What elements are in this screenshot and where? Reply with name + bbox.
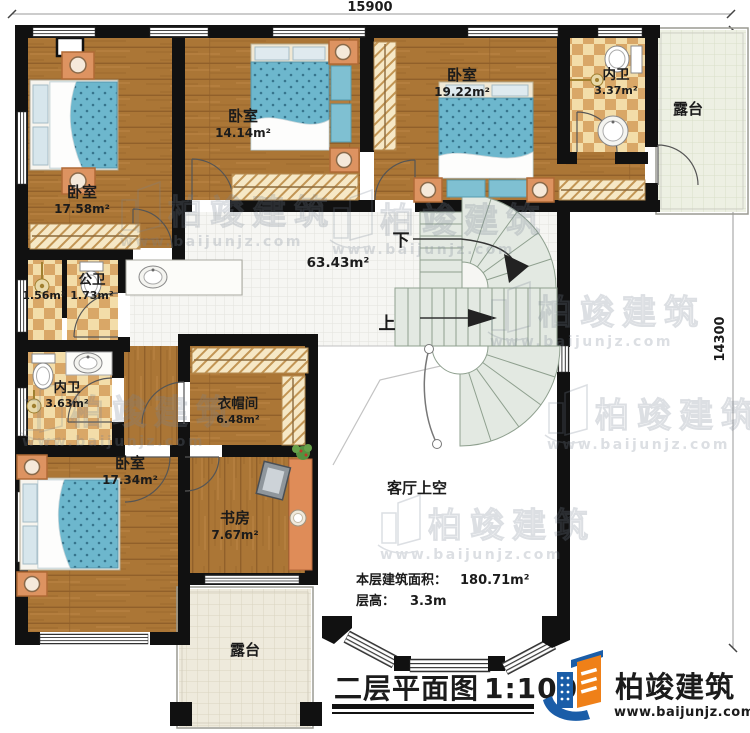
terrace-post xyxy=(300,702,322,726)
svg-text:柏竣建筑: 柏竣建筑 xyxy=(595,396,750,436)
label-public-bath-name: 公卫 xyxy=(79,272,106,288)
label-bedroom-tr-name: 卧室 xyxy=(447,66,477,84)
window xyxy=(468,27,558,37)
svg-text:www.baijunjz.com: www.baijunjz.com xyxy=(490,334,673,350)
nightstand xyxy=(329,40,358,64)
bed-bedroom-tl xyxy=(30,80,118,170)
label-living-void: 客厅上空 xyxy=(386,479,447,497)
wardrobe xyxy=(374,42,396,150)
hall-sink-counter xyxy=(126,260,242,295)
toilet-ensuite-left xyxy=(32,354,55,389)
label-hall-area: 63.43m² xyxy=(307,255,370,271)
label-bedroom-tm-name: 卧室 xyxy=(228,107,258,125)
label-shower-room-area: 1.56m² xyxy=(22,289,66,302)
sink-ensuite-tr xyxy=(598,116,628,146)
stair-rail-post xyxy=(425,345,434,354)
window xyxy=(17,112,27,184)
floor-plan-page: 15900 14300 xyxy=(0,0,750,733)
label-ensuite-left-name: 内卫 xyxy=(54,379,81,396)
label-bedroom-tl-area: 17.58m² xyxy=(54,202,110,216)
label-public-bath-area: 1.73m² xyxy=(70,289,114,302)
brand-url: www.baijunjz.com xyxy=(614,705,750,720)
svg-text:www.baijunjz.com: www.baijunjz.com xyxy=(22,434,205,450)
label-bedroom-bl-area: 17.34m² xyxy=(102,473,158,487)
nightstand xyxy=(330,148,359,172)
wardrobe xyxy=(559,180,645,200)
bed-bedroom-bl xyxy=(20,478,120,570)
terrace-post xyxy=(170,702,192,726)
label-cloakroom-area: 6.48m² xyxy=(216,413,260,426)
label-terrace-bottom: 露台 xyxy=(230,641,260,659)
floor-terrace-tr xyxy=(658,30,746,212)
label-stairs-up: 上 xyxy=(379,314,396,334)
watermark: 柏竣建筑 www.baijunjz.com xyxy=(545,385,750,453)
bay-window xyxy=(322,616,570,674)
watermark-url: www.baijunjz.com xyxy=(120,234,303,250)
label-bedroom-bl-name: 卧室 xyxy=(115,454,145,472)
plan-title: 二层平面图 xyxy=(334,672,479,705)
floor-plan: 15900 14300 xyxy=(0,0,750,733)
svg-text:www.baijunjz.com: www.baijunjz.com xyxy=(547,437,730,453)
label-bedroom-tl-name: 卧室 xyxy=(67,183,97,201)
value-floor-height: 3.3m xyxy=(410,594,447,609)
dimension-right-value: 14300 xyxy=(713,316,728,361)
label-study-area: 7.67m² xyxy=(211,528,258,542)
window xyxy=(273,27,365,37)
brand-name: 柏竣建筑 xyxy=(615,670,735,704)
svg-text:柏竣建筑: 柏竣建筑 xyxy=(428,506,596,546)
label-terrace-tr: 露台 xyxy=(673,100,703,118)
svg-text:柏竣建筑: 柏竣建筑 xyxy=(538,293,706,333)
label-stairs-down: 下 xyxy=(393,231,410,251)
nightstand xyxy=(62,52,94,79)
svg-text:www.baijunjz.com: www.baijunjz.com xyxy=(380,547,563,563)
window xyxy=(33,27,95,37)
window xyxy=(17,280,27,332)
watermark-name: 柏竣建筑 xyxy=(168,193,336,233)
nightstand xyxy=(17,572,47,596)
svg-text:柏竣建筑: 柏竣建筑 xyxy=(70,393,238,433)
label-floor-area: 本层建筑面积： xyxy=(356,572,447,588)
label-study-name: 书房 xyxy=(220,509,250,527)
window xyxy=(150,27,208,37)
nightstand xyxy=(527,178,554,202)
label-bedroom-tm-area: 14.14m² xyxy=(215,126,271,140)
sink-ensuite-left xyxy=(66,352,112,375)
label-ensuite-tr-area: 3.37m² xyxy=(594,84,638,97)
nightstand xyxy=(17,455,47,479)
label-cloakroom-name: 衣帽间 xyxy=(218,395,259,412)
nightstand xyxy=(414,178,442,202)
label-ensuite-tr-name: 内卫 xyxy=(603,66,631,83)
plan-title-block: 二层平面图 1:100 xyxy=(332,672,578,714)
dimension-top-value: 15900 xyxy=(347,0,392,15)
stair-rail-post xyxy=(433,440,442,449)
window xyxy=(205,575,299,584)
dimension-top: 15900 xyxy=(8,0,735,18)
label-bedroom-tr-area: 19.22m² xyxy=(434,85,490,99)
label-ensuite-left-area: 3.63m² xyxy=(45,397,89,410)
window xyxy=(17,388,27,436)
wardrobe xyxy=(192,348,308,373)
value-floor-area: 180.71m² xyxy=(460,573,529,588)
window xyxy=(598,27,642,37)
wardrobe xyxy=(282,376,305,445)
window xyxy=(40,634,148,644)
label-floor-height: 层高： xyxy=(356,593,395,609)
